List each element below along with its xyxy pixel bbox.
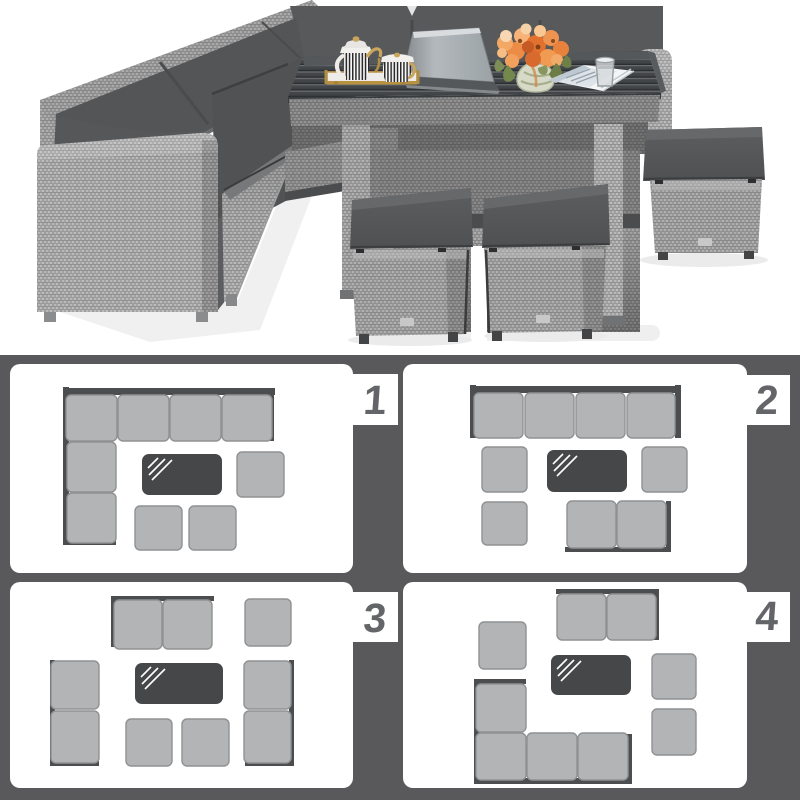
svg-text:1: 1 xyxy=(362,377,388,423)
svg-text:3: 3 xyxy=(362,595,388,641)
svg-text:4: 4 xyxy=(754,593,780,639)
svg-text:2: 2 xyxy=(754,377,780,423)
